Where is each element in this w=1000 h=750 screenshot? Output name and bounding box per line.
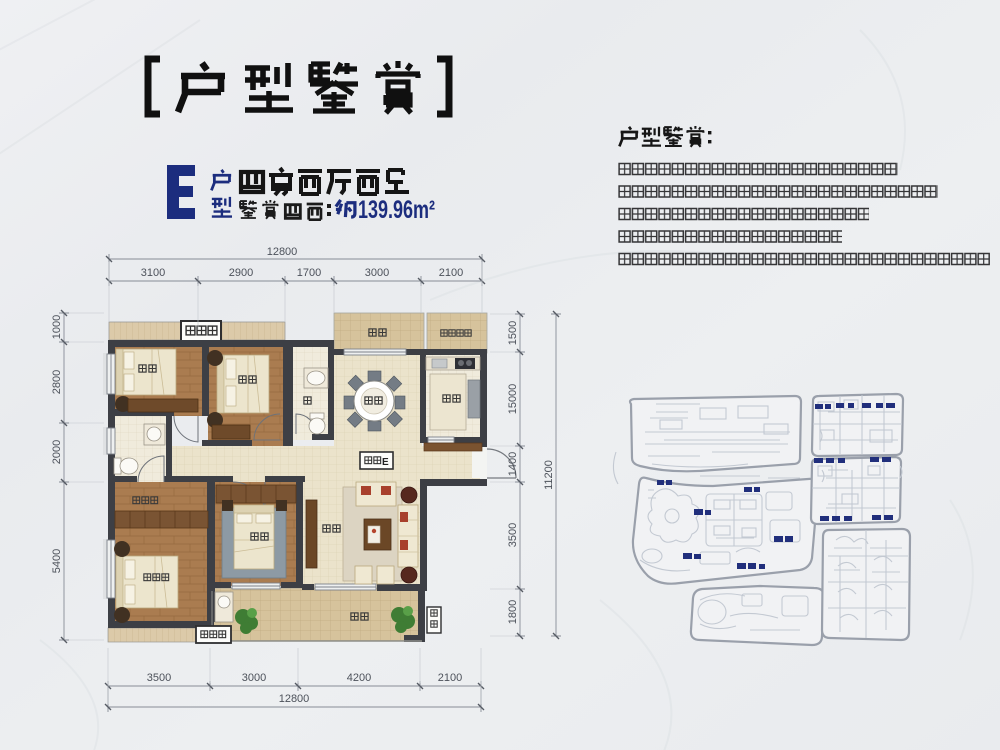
svg-text:2100: 2100 [438,672,462,684]
svg-text:11200: 11200 [543,460,555,490]
svg-text:3000: 3000 [365,267,389,279]
svg-text:2900: 2900 [229,267,253,279]
svg-text:3500: 3500 [147,672,171,684]
svg-text:1500: 1500 [507,321,519,345]
svg-text:2100: 2100 [439,267,463,279]
svg-text:3000: 3000 [242,672,266,684]
svg-text:1400: 1400 [507,452,519,476]
svg-text:3500: 3500 [507,523,519,547]
svg-text:1000: 1000 [51,315,63,339]
svg-text:15000: 15000 [507,384,519,415]
svg-text:E: E [382,457,389,468]
svg-text:3100: 3100 [141,267,165,279]
svg-text:1800: 1800 [507,600,519,624]
svg-text:4200: 4200 [347,672,371,684]
svg-text:12800: 12800 [267,246,298,258]
svg-text:2000: 2000 [51,440,63,464]
svg-text:5400: 5400 [51,549,63,573]
svg-text:12800: 12800 [279,693,310,705]
svg-text:2800: 2800 [51,370,63,394]
svg-text:1700: 1700 [297,267,321,279]
svg-text:139.96m²: 139.96m² [358,196,435,224]
